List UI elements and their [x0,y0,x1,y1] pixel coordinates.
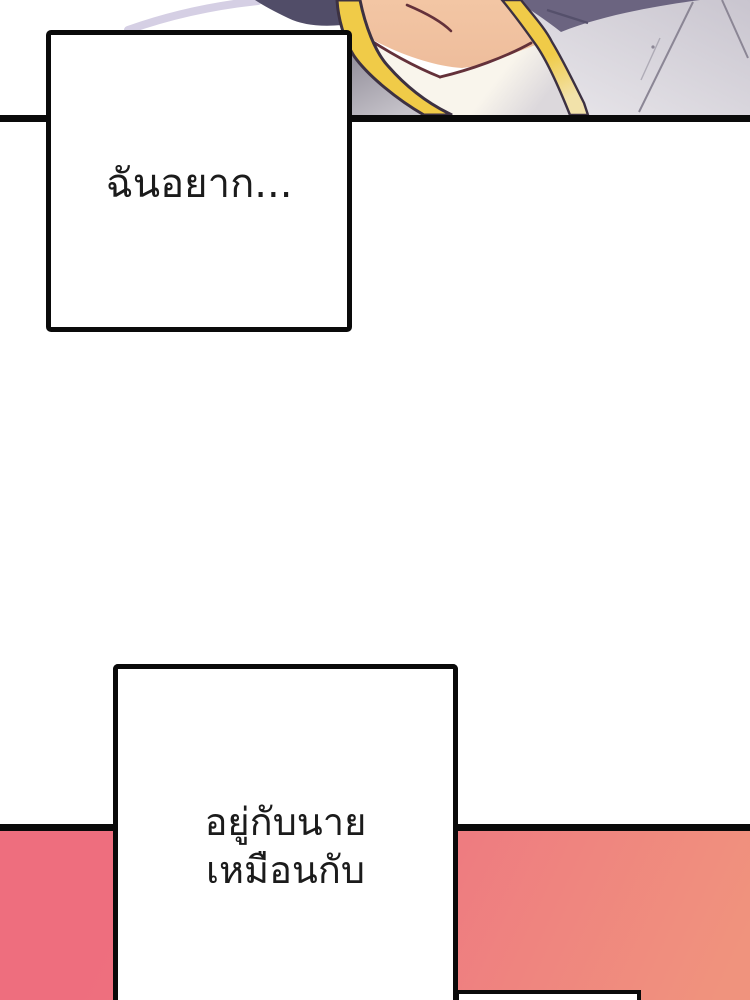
bubble-1-text: ฉันอยาก... [106,151,293,215]
bubble-2-line-1: อยู่กับนาย [205,799,367,846]
fabric-speck [651,45,654,48]
comic-page: ฉันอยาก... อยู่กับนาย เหมือนกับ [0,0,750,1000]
speech-bubble-peek [455,990,641,1000]
bubble-2-line-2: เหมือนกับ [206,847,365,894]
speech-bubble-1: ฉันอยาก... [46,30,352,332]
speech-bubble-2: อยู่กับนาย เหมือนกับ [113,664,458,1000]
